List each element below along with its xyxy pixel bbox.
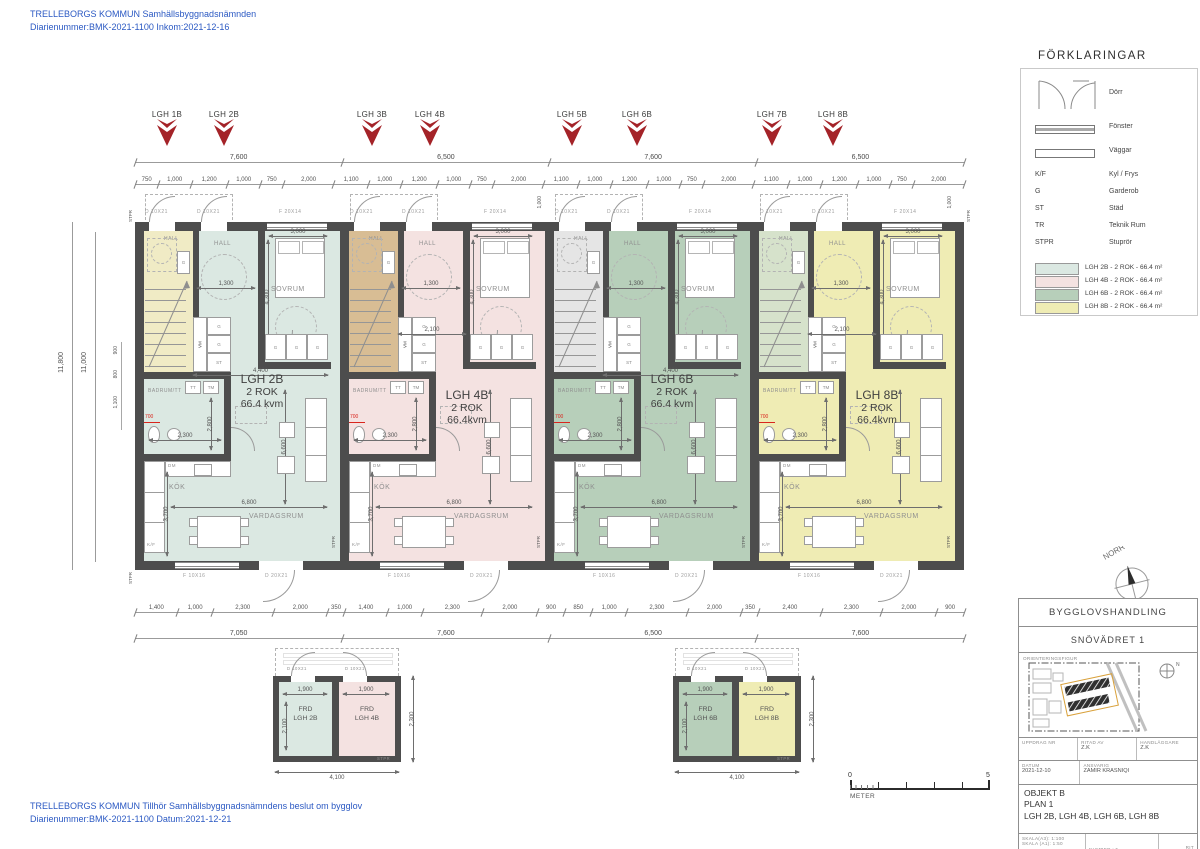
interior-wall [349,372,436,379]
dimension-label: 6,500 [757,154,964,162]
pillow [507,241,529,254]
object-line1: OBJEKT B [1024,788,1192,799]
fridge-freezer [349,461,370,553]
entrance-marker-lgh-6b: LGH 6B [609,110,665,152]
handlaggare-value: Z.K [1140,745,1194,751]
kitchen-label: KÖK [784,484,800,491]
entrance-marker-label: LGH 6B [609,110,665,119]
wardrobe-box: G [675,334,696,360]
door-opening [691,676,715,682]
entrance-marker-lgh-4b: LGH 4B [402,110,458,152]
dimension: 1,300 [812,288,870,289]
unit-rok: 2 ROK [197,386,327,398]
dimension: 3,000 [269,236,327,237]
storage-room-label: FRDLGH 2B [279,706,332,723]
turning-circle [611,254,657,300]
fridge-freezer [759,461,780,553]
party-wall [340,222,349,570]
livingroom-label: VARDAGSRUM [864,513,919,520]
apartment-legend-label: LGH 8B - 2 ROK - 66.4 m² [1085,303,1162,310]
unit-name: LGH 2B [197,372,327,386]
dimension-label: 1,000 [857,177,890,184]
dimension: 1,300 [402,288,460,289]
dimension-row: 7,0507,6006,5007,600 [135,624,964,639]
storage-building-1: D 10X21 D 10X21 1,900 1,900 2,100 2,300 … [273,648,407,780]
info-row-2: DATUM2021-12-10 ANSVARIGZAMIR KRASNIQI [1019,761,1197,785]
stpr-label: STPR [128,210,133,222]
storage-building-2: D 10X21 D 10X21 1,900 1,900 2,100 2,300 … [673,648,807,780]
unit-area: 66.4 kvm [197,398,327,410]
turning-circle [406,254,452,300]
wardrobe-box: G [792,251,805,274]
pillow [278,241,300,254]
dimension-label: 1,200 [401,177,437,184]
door-opening [354,222,380,231]
header-line1: TRELLEBORGS KOMMUN Samhällsbyggnadsnämnd… [30,8,256,21]
dimension-label: 2,300 [422,605,483,612]
turning-circle [151,243,172,264]
window [585,562,649,569]
chair [240,536,249,545]
entrance-arrow-icon [214,119,234,147]
kitchen-label: KÖK [169,484,185,491]
window-tag: F 10X16 [388,573,410,579]
abbr-key: G [1035,188,1040,195]
storage-wall [332,676,339,762]
bedroom-label: SOVRUM [271,286,305,293]
unit-name: LGH 8B [812,388,942,402]
armchair [892,456,910,474]
dimension: 3,700 [577,472,578,556]
stairwell-hall: HALL G [349,231,398,372]
dimension-label: 7,600 [135,154,342,162]
bedroom-label: SOVRUM [886,286,920,293]
door-opening [743,676,767,682]
kitchen-label: KÖK [374,484,390,491]
door-icon [1033,77,1097,113]
apartment-unit-lgh-6b: HALL G D 10X21 D 10X21 F 20X14 1,000 HAL… [545,222,750,570]
cleaning-closet: ST [412,353,436,372]
window-label: Fönster [1109,123,1133,130]
level-mark: 700 [145,414,153,420]
apartment-unit-lgh-4b: HALL G D 10X21 D 10X21 F 20X14 1,000 HAL… [340,222,545,570]
dimension-label: 750 [135,177,158,184]
abbr-label: Teknik Rum [1109,222,1146,229]
entrance-arrow-icon [762,119,782,147]
dimension: 6,800 [376,507,532,508]
dimension-label: 1,000 [647,177,680,184]
abbr-key: K/F [1035,171,1046,178]
interior-wall [873,362,946,369]
party-wall [545,222,554,570]
dimension-label: 11,800 [58,352,65,373]
hall-label: HALL [829,241,846,247]
stair-run-line [349,277,398,371]
chair [804,536,813,545]
stair-run-line [554,277,603,371]
door-opening [406,222,432,231]
wardrobe-box: G [587,251,600,274]
entrance-marker-label: LGH 1B [139,110,195,119]
stpr-label: STPR [536,536,541,548]
door-tag: D 20X21 [470,573,493,579]
entrance-arrow-icon [823,119,843,147]
turning-circle [356,243,377,264]
storage-room-label: FRDLGH 4B [339,706,395,723]
door-opening [816,222,842,231]
door-opening [669,561,713,570]
property-name: SNÖVÄDRET 1 [1019,627,1197,653]
dimension-label: 350 [328,605,345,612]
door-tag: D 20X21 [675,573,698,579]
dimension-label: 750 [680,177,703,184]
entrance-marker-lgh-1b: LGH 1B [139,110,195,152]
window-tag: F 20X14 [484,209,506,215]
dimension-label: 2,000 [273,605,328,612]
hall-label: HALL [624,241,641,247]
dimension-label: 2,000 [493,177,543,184]
dimension-row: 7501,0001,2001,0007502,0001,1001,0001,20… [135,170,964,185]
entrance-marker-label: LGH 8B [805,110,861,119]
dimension-label: 1,100 [544,177,579,184]
dimension-label: 1,200 [821,177,857,184]
fridge-freezer [554,461,575,553]
north-label: NORR [1102,546,1127,562]
dimension-label: 2,300 [627,605,688,612]
building-wall [955,222,964,570]
doc-type: BYGGLOVSHANDLING [1019,599,1197,627]
door-opening [343,676,367,682]
scale-line2: SKALA (A1): 1:50 [1022,841,1082,846]
entrance-arrow-icon [420,119,440,147]
door-opening [201,222,227,231]
dimension-label: 1,000 [592,605,627,612]
interior-wall [258,362,331,369]
livingroom-label: VARDAGSRUM [659,513,714,520]
wardrobe-box: G [822,335,846,353]
pillow [688,241,710,254]
wall-icon [1035,149,1095,158]
wardrobe-box: G [922,334,943,360]
armchair [277,456,295,474]
header-stamp: TRELLEBORGS KOMMUN Samhällsbyggnadsnämnd… [30,8,256,34]
door-tag: D 10X21 [402,209,425,215]
dimension-label: 900 [936,605,964,612]
door-tag: D 20X21 [265,573,288,579]
door-opening [149,222,175,231]
dimension-row: 7,6006,5007,6006,500 [135,148,964,163]
unit-area: 66.4kvm [402,414,532,426]
dimension-label: 1,000 [178,605,213,612]
level-mark: 700 [555,414,563,420]
wardrobe-box: G [491,334,512,360]
sink [194,464,212,476]
map-north-letter: N [1176,662,1180,668]
laundry-closet: VM [193,317,207,372]
interior-wall [759,454,846,461]
storage-wall [395,676,401,762]
dimension-label: 2,000 [687,605,742,612]
entrance-marker-lgh-5b: LGH 5B [544,110,600,152]
laundry-closet: VM [808,317,822,372]
ritad-value: Z.K [1081,745,1133,751]
interior-wall [144,454,231,461]
dimension-label: 7,050 [135,630,342,638]
dimension-label: 7,600 [342,630,549,638]
drawing-sheet: { "header": { "line1": "TRELLEBORGS KOMM… [0,0,1200,849]
entrance-arrow-icon [362,119,382,147]
dimension-label: 2,000 [882,605,937,612]
chair [240,518,249,527]
cleaning-closet: ST [822,353,846,372]
chair [855,536,864,545]
entrance-arrow-icon [562,119,582,147]
abbr-key: ST [1035,205,1044,212]
door-opening [259,561,303,570]
scale-minor-ticks [850,785,878,789]
dimension-label: 2,000 [483,605,538,612]
laundry-closet: VM [398,317,412,372]
chair [599,518,608,527]
unit-rok: 2 ROK [402,402,532,414]
pillow [917,241,939,254]
level-mark: 700 [760,414,768,420]
apartment-unit-lgh-2b: HALL G D 10X21 D 10X21 F 20X14 1,000 HAL… [135,222,340,570]
apartment-legend-label: LGH 6B - 2 ROK - 66.4 m² [1085,290,1162,297]
turning-circle [816,254,862,300]
dimension-label: 6,500 [342,154,549,162]
level-mark: 700 [350,414,358,420]
dining-table [197,516,241,548]
info-row-1: UPPDRAG NR RITAD AVZ.K HANDLÄGGAREZ.K [1019,738,1197,761]
dimension-label: 1,400 [135,605,178,612]
dishwasher-label: DM [373,463,381,468]
footer-stamp: TRELLEBORGS KOMMUN Tillhör Samhällsbyggn… [30,800,362,826]
entrance-marker-label: LGH 7B [744,110,800,119]
apartment-color-swatch [1035,263,1079,275]
cleaning-closet: ST [207,353,231,372]
apartment-color-swatch [1035,276,1079,288]
interior-wall [554,454,641,461]
title-block: BYGGLOVSHANDLING SNÖVÄDRET 1 ORIENTERING… [1018,598,1198,849]
dimension-label: 2,000 [914,177,964,184]
orientation-figure: ORIENTERINGSFIGUR [1019,653,1197,738]
bedroom-label: SOVRUM [476,286,510,293]
window-icon [1035,125,1095,134]
stpr-label: STPR [128,572,133,584]
sofa [715,398,737,482]
door-tag: D 10X21 [760,209,783,215]
unit-area: 66.4 kvm [607,398,737,410]
entrance-marker-lgh-2b: LGH 2B [196,110,252,152]
fridge-label: K/F [147,542,156,547]
dimension-label: 2,400 [759,605,821,612]
turning-circle [561,243,582,264]
pillow [712,241,734,254]
entrance-marker-label: LGH 2B [196,110,252,119]
unit-title: LGH 4B 2 ROK 66.4kvm [402,388,532,426]
info-row-3: SKALA(A3): 1:100 SKALA (A1): 1:50 NUMBER… [1019,834,1197,849]
door-tag: D 10X21 [350,209,373,215]
dimension-label: 750 [470,177,493,184]
storage-room-label: FRDLGH 6B [679,706,732,723]
dimension-label: 2,300 [213,605,274,612]
wardrobe-box: G [880,334,901,360]
dimension-label: 2,000 [703,177,753,184]
dimension: 3,700 [782,472,783,556]
entrance-marker-label: LGH 3B [344,110,400,119]
door-tag: D 10X21 [197,209,220,215]
storage-room-label: FRDLGH 8B [739,706,795,723]
dimension-label: 7,600 [757,630,964,638]
dimension-label: 1,200 [191,177,227,184]
dimension-label: 1,000 [578,177,611,184]
door-tag: D 10X21 [287,666,307,671]
dimension-label: 750 [260,177,283,184]
wardrobe-box: G [696,334,717,360]
storage-wall [795,676,801,762]
dimension-label: 1,100 [113,396,119,409]
dimension-label: 1,000 [387,605,422,612]
chair [804,518,813,527]
dining-table [402,516,446,548]
dimension: 1,900 [683,694,727,695]
stairwell-hall: HALL G [144,231,193,372]
entrance-marker-lgh-3b: LGH 3B [344,110,400,152]
dimension-label: 1,000 [947,196,953,209]
abbr-label: Garderob [1109,188,1139,195]
laundry-closet: VM [603,317,617,372]
dimension: 4,100 [275,772,399,773]
storage-wall [732,676,739,762]
wardrobe-box: G [177,251,190,274]
party-wall [750,222,759,570]
legend-box: Dörr Fönster Väggar K/FKyl / FrysGGarder… [1020,68,1198,316]
door-tag: D 10X21 [145,209,168,215]
kitchen-label: KÖK [579,484,595,491]
dimension-label: 1,200 [611,177,647,184]
dining-table [812,516,856,548]
corner-tag: RIT [1186,845,1194,849]
window-tag: F 10X16 [183,573,205,579]
dimension-label: 2,000 [283,177,333,184]
dishwasher-label: DM [168,463,176,468]
stair-run-line [144,277,193,371]
pillow [893,241,915,254]
site-map: N [1019,653,1195,737]
orientation-label: ORIENTERINGSFIGUR [1023,656,1077,661]
level-line [349,422,365,423]
hall-label: HALL [214,241,231,247]
stpr-label: STPR [741,536,746,548]
entrance-arrow-icon [627,119,647,147]
chair [855,518,864,527]
interior-wall [759,372,846,379]
dimension-label: 1,000 [368,177,401,184]
bathroom-label: BADRUM/TT [558,388,592,394]
dimension-label: 1,100 [334,177,369,184]
armchair [482,456,500,474]
unit-name: LGH 4B [402,388,532,402]
scale-five: 5 [986,772,990,779]
door-opening [464,561,508,570]
stpr-label: STPR [966,210,971,222]
wardrobe-box: G [207,335,231,353]
chair [445,518,454,527]
entrance-marker-lgh-8b: LGH 8B [805,110,861,152]
object-line3: LGH 2B, LGH 4B, LGH 6B, LGH 8B [1024,810,1192,823]
scale-unit: METER [850,793,875,800]
unit-rok: 2 ROK [812,402,942,414]
wardrobe-box: G [286,334,307,360]
dimension: 3,000 [884,236,942,237]
dimension-label: 1,000 [437,177,470,184]
window-tag: F 20X14 [894,209,916,215]
level-line [759,422,775,423]
pillow [483,241,505,254]
door-opening [611,222,637,231]
window [175,562,239,569]
dimension-label: 2,300 [821,605,882,612]
chair [394,536,403,545]
wardrobe-box: G [207,317,231,335]
stairwell-hall: HALL G [554,231,603,372]
interior-wall [349,454,436,461]
entrance-arrow-icon [157,119,177,147]
entrance-marker-label: LGH 4B [402,110,458,119]
pillow [302,241,324,254]
fridge-label: K/F [557,542,566,547]
turning-circle [201,254,247,300]
dimension: 4,100 [675,772,799,773]
apartment-color-swatch [1035,302,1079,314]
dimension-label: 350 [742,605,759,612]
unit-area: 66.4kvm [812,414,942,426]
dimension: 1,300 [197,288,255,289]
stair-run-line [759,277,808,371]
chair [189,518,198,527]
level-line [554,422,570,423]
dimension-label: 11,000 [81,352,88,373]
cleaning-closet: ST [617,353,641,372]
dimension: 3,000 [474,236,532,237]
dining-table [607,516,651,548]
wardrobe-box: G [470,334,491,360]
party-wall [135,222,144,570]
dimension: 3,700 [167,472,168,556]
interior-wall [398,231,404,317]
interior-wall [668,362,741,369]
door-opening [559,222,585,231]
stpr-label: STPR [777,756,790,761]
door-opening [291,676,315,682]
apartment-color-swatch [1035,289,1079,301]
wardrobe-box: G [617,335,641,353]
unit-title: LGH 2B 2 ROK 66.4 kvm [197,372,327,410]
door-tag: D 10X21 [345,666,365,671]
dimension-label: 900 [537,605,565,612]
dishwasher-label: DM [783,463,791,468]
dimension-label: 900 [113,346,119,354]
dimension: 6,800 [786,507,942,508]
apartment-legend-label: LGH 2B - 2 ROK - 66.4 m² [1085,264,1162,271]
apartment-unit-lgh-8b: HALL G D 10X21 D 10X21 F 20X14 1,000 HAL… [750,222,955,570]
wardrobe-box: G [901,334,922,360]
sofa [305,398,327,482]
dimension-row: 1,4001,0002,3002,0003501,4001,0002,3002,… [135,598,964,613]
unit-rok: 2 ROK [607,386,737,398]
door-tag: D 10X21 [607,209,630,215]
